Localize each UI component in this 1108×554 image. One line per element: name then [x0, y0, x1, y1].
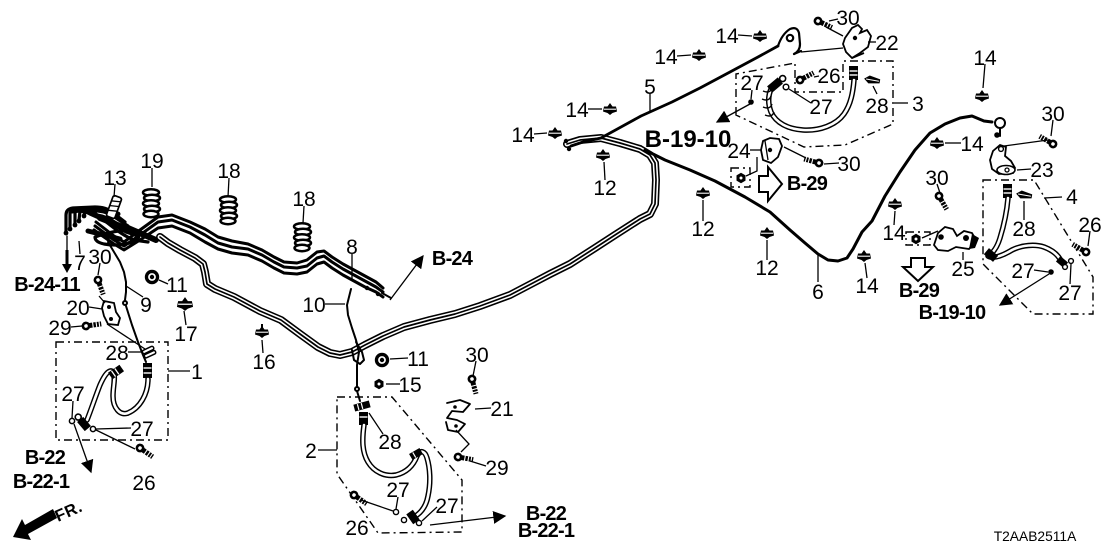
svg-text:B-19-10: B-19-10	[645, 126, 732, 153]
svg-text:21: 21	[490, 398, 513, 421]
svg-text:30: 30	[925, 167, 948, 190]
svg-text:12: 12	[755, 257, 778, 280]
svg-text:B-22-1: B-22-1	[13, 471, 70, 493]
svg-text:30: 30	[465, 344, 488, 367]
svg-text:27: 27	[1058, 282, 1081, 305]
svg-text:27: 27	[386, 479, 409, 502]
svg-text:28: 28	[1012, 218, 1035, 241]
svg-text:14: 14	[960, 133, 984, 156]
svg-text:19: 19	[140, 150, 163, 173]
svg-text:27: 27	[1011, 260, 1034, 283]
svg-text:14: 14	[882, 222, 906, 245]
svg-text:18: 18	[292, 188, 315, 211]
svg-text:11: 11	[407, 348, 429, 371]
svg-text:23: 23	[1030, 159, 1053, 182]
svg-text:13: 13	[103, 167, 126, 190]
svg-text:27: 27	[61, 383, 84, 406]
svg-text:14: 14	[715, 25, 739, 48]
svg-text:18: 18	[217, 160, 240, 183]
svg-text:14: 14	[654, 46, 678, 69]
svg-text:6: 6	[812, 281, 824, 304]
svg-text:2: 2	[305, 440, 317, 463]
svg-text:28: 28	[105, 342, 128, 365]
svg-text:B-22: B-22	[25, 447, 66, 469]
svg-text:28: 28	[865, 95, 888, 118]
svg-text:B-24: B-24	[432, 248, 474, 270]
svg-text:28: 28	[378, 431, 401, 454]
svg-text:12: 12	[593, 177, 616, 200]
svg-text:5: 5	[644, 76, 656, 99]
svg-text:26: 26	[132, 472, 155, 495]
svg-text:4: 4	[1066, 186, 1078, 209]
svg-text:14: 14	[511, 124, 535, 147]
svg-text:11: 11	[166, 274, 188, 297]
svg-text:10: 10	[302, 294, 325, 317]
svg-text:T2AAB2511A: T2AAB2511A	[994, 529, 1077, 544]
svg-text:27: 27	[740, 72, 763, 95]
svg-text:30: 30	[1041, 103, 1064, 126]
svg-text:30: 30	[836, 7, 859, 30]
svg-text:B-29: B-29	[787, 173, 828, 195]
svg-text:B-24-11: B-24-11	[14, 274, 80, 296]
svg-text:7: 7	[74, 252, 86, 275]
svg-text:17: 17	[174, 323, 197, 346]
svg-text:14: 14	[973, 47, 997, 70]
svg-text:8: 8	[346, 236, 358, 259]
svg-text:16: 16	[252, 351, 275, 374]
svg-text:29: 29	[485, 457, 508, 480]
svg-text:3: 3	[912, 93, 924, 116]
svg-text:1: 1	[191, 361, 203, 384]
svg-text:27: 27	[130, 418, 153, 441]
svg-text:B-29: B-29	[899, 280, 940, 302]
svg-text:27: 27	[435, 495, 458, 518]
svg-text:15: 15	[398, 374, 421, 397]
svg-text:26: 26	[345, 517, 368, 540]
svg-text:27: 27	[809, 96, 832, 119]
svg-text:B-19-10: B-19-10	[919, 302, 986, 324]
svg-text:9: 9	[140, 294, 152, 317]
svg-text:29: 29	[48, 317, 71, 340]
svg-text:30: 30	[88, 246, 111, 269]
svg-text:25: 25	[951, 258, 974, 281]
svg-text:14: 14	[565, 99, 589, 122]
svg-text:B-22-1: B-22-1	[518, 520, 575, 542]
svg-text:26: 26	[1078, 214, 1101, 237]
svg-text:26: 26	[817, 65, 840, 88]
svg-text:30: 30	[837, 153, 860, 176]
svg-text:12: 12	[691, 218, 714, 241]
svg-text:14: 14	[855, 275, 879, 298]
svg-text:22: 22	[875, 32, 898, 55]
